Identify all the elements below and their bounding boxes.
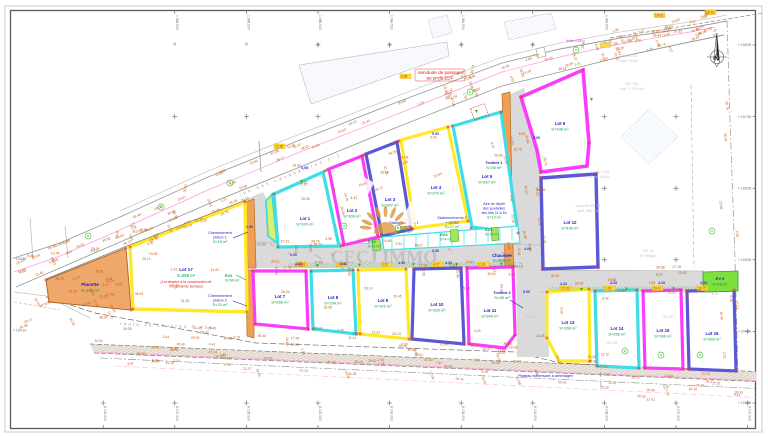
svg-text:2.24: 2.24 xyxy=(173,359,180,363)
svg-text:S=306 m²: S=306 m² xyxy=(343,214,361,219)
svg-text:Lot 7: Lot 7 xyxy=(275,294,286,299)
svg-text:1.22: 1.22 xyxy=(171,267,178,271)
svg-text:34.06: 34.06 xyxy=(537,188,546,192)
svg-text:+ 107.50: + 107.50 xyxy=(738,115,751,119)
svg-text:surf. 980 m2: surf. 980 m2 xyxy=(577,209,598,213)
svg-text:18.45: 18.45 xyxy=(509,345,518,349)
svg-text:7.90: 7.90 xyxy=(473,358,480,362)
svg-text:27.31: 27.31 xyxy=(281,240,290,244)
svg-text:4.33: 4.33 xyxy=(700,281,707,285)
svg-text:15.33: 15.33 xyxy=(461,286,470,290)
svg-text:11.43: 11.43 xyxy=(608,381,617,385)
svg-text:8.15: 8.15 xyxy=(301,180,308,184)
svg-text:2.00: 2.00 xyxy=(735,231,740,238)
svg-text:25.12: 25.12 xyxy=(142,257,151,261)
svg-text:35.32: 35.32 xyxy=(637,394,646,398)
svg-text:25.17: 25.17 xyxy=(706,380,715,384)
svg-text:0.97: 0.97 xyxy=(663,385,670,389)
svg-text:8 138.000: 8 138.000 xyxy=(461,406,465,421)
svg-text:21.27: 21.27 xyxy=(243,367,252,371)
svg-text:4.96: 4.96 xyxy=(325,237,332,241)
svg-text:29.76: 29.76 xyxy=(170,348,179,352)
svg-text:4.33: 4.33 xyxy=(560,282,567,286)
svg-text:Placette: Placette xyxy=(81,282,99,287)
svg-text:27.72: 27.72 xyxy=(357,238,366,242)
svg-text:27.83: 27.83 xyxy=(295,264,304,268)
svg-text:10.52: 10.52 xyxy=(94,339,103,343)
svg-text:8.42: 8.42 xyxy=(602,296,609,300)
svg-text:32.56: 32.56 xyxy=(324,306,333,310)
svg-text:S=38 m²: S=38 m² xyxy=(494,295,510,300)
svg-text:29.41: 29.41 xyxy=(653,287,661,291)
svg-text:28.72: 28.72 xyxy=(313,242,322,246)
svg-text:28.82: 28.82 xyxy=(368,359,377,363)
svg-text:34.78: 34.78 xyxy=(348,372,357,376)
svg-text:8 135.000: 8 135.000 xyxy=(318,406,322,421)
svg-text:4.97: 4.97 xyxy=(127,362,134,366)
svg-text:ZD 19: ZD 19 xyxy=(663,315,673,319)
svg-text:12.48: 12.48 xyxy=(440,342,449,346)
svg-text:12.31: 12.31 xyxy=(449,264,458,268)
svg-text:10.91: 10.91 xyxy=(482,346,491,350)
svg-text:5.00: 5.00 xyxy=(523,290,530,294)
svg-text:14.94: 14.94 xyxy=(665,374,674,378)
svg-text:14.81: 14.81 xyxy=(655,14,663,18)
svg-text:S=360 m²: S=360 m² xyxy=(703,337,721,342)
svg-text:18.18: 18.18 xyxy=(514,265,523,269)
svg-text:4.00: 4.00 xyxy=(301,166,308,170)
svg-text:S=13 m²: S=13 m² xyxy=(487,216,501,220)
svg-text:20.23: 20.23 xyxy=(392,332,401,336)
svg-text:36.01: 36.01 xyxy=(558,67,567,71)
svg-text:13.06: 13.06 xyxy=(149,252,158,256)
svg-text:36.49: 36.49 xyxy=(257,334,266,338)
svg-text:+ accès: + accès xyxy=(445,220,458,224)
svg-text:30.05: 30.05 xyxy=(224,336,233,340)
svg-text:1.99: 1.99 xyxy=(605,287,612,291)
svg-text:+ 108.50: + 108.50 xyxy=(738,43,751,47)
svg-text:33.95: 33.95 xyxy=(500,284,504,293)
svg-text:S=286 m²: S=286 m² xyxy=(654,334,672,339)
svg-text:6.29: 6.29 xyxy=(116,282,123,286)
svg-text:36.03: 36.03 xyxy=(135,292,144,296)
svg-text:2.79: 2.79 xyxy=(337,329,344,333)
svg-text:Lot 9: Lot 9 xyxy=(378,298,389,303)
svg-text:33.19: 33.19 xyxy=(165,361,174,365)
svg-text:35.33: 35.33 xyxy=(558,380,567,384)
svg-text:2.25: 2.25 xyxy=(378,362,385,366)
svg-text:12.31: 12.31 xyxy=(372,331,381,335)
svg-text:31.52: 31.52 xyxy=(181,299,190,303)
svg-text:1 986.500: 1 986.500 xyxy=(246,15,250,30)
svg-text:3.50: 3.50 xyxy=(432,249,439,253)
svg-text:S=266 m²: S=266 m² xyxy=(559,326,577,331)
svg-text:ZD 14: ZD 14 xyxy=(643,249,653,253)
svg-text:11.01: 11.01 xyxy=(353,331,361,335)
svg-text:11.41: 11.41 xyxy=(348,336,356,340)
svg-text:1 984.500: 1 984.500 xyxy=(604,15,608,30)
svg-text:7.83: 7.83 xyxy=(649,281,656,285)
svg-text:EV2: EV2 xyxy=(225,274,232,278)
svg-text:25.42: 25.42 xyxy=(398,344,407,348)
svg-text:Lot 2: Lot 2 xyxy=(347,208,358,213)
svg-text:14.35: 14.35 xyxy=(536,334,545,338)
svg-text:4.31: 4.31 xyxy=(351,196,358,200)
svg-text:parcelle ZD 12: parcelle ZD 12 xyxy=(576,204,601,208)
svg-text:Lot 10: Lot 10 xyxy=(431,302,444,307)
svg-text:10.28: 10.28 xyxy=(588,355,597,359)
svg-text:1 986.500: 1 986.500 xyxy=(318,15,322,30)
svg-text:27.08: 27.08 xyxy=(314,260,323,264)
svg-text:36.18: 36.18 xyxy=(735,390,744,394)
svg-text:ZD 18: ZD 18 xyxy=(607,341,617,345)
svg-text:11.14: 11.14 xyxy=(701,371,710,375)
svg-text:5.00: 5.00 xyxy=(533,136,540,140)
svg-text:S=322 m²: S=322 m² xyxy=(374,304,392,309)
svg-text:11.92: 11.92 xyxy=(668,291,676,295)
svg-text:Lot 13: Lot 13 xyxy=(562,320,575,325)
svg-text:Zone 2AUh: Zone 2AUh xyxy=(590,175,609,179)
svg-text:23.46: 23.46 xyxy=(383,239,392,243)
svg-text:20.23: 20.23 xyxy=(99,295,108,299)
svg-text:Lot 4: Lot 4 xyxy=(431,185,442,190)
svg-text:8 134.000: 8 134.000 xyxy=(533,406,537,421)
svg-text:Lot 16: Lot 16 xyxy=(706,331,719,336)
svg-text:1.50: 1.50 xyxy=(246,225,253,229)
svg-text:6.39: 6.39 xyxy=(509,273,516,277)
svg-text:0.84: 0.84 xyxy=(401,75,408,79)
svg-text:+ 105.50: + 105.50 xyxy=(738,258,751,262)
svg-text:33.14: 33.14 xyxy=(364,286,373,290)
svg-text:3.23: 3.23 xyxy=(474,329,481,333)
svg-text:8 138.000: 8 138.000 xyxy=(604,406,608,421)
svg-text:Lot 11: Lot 11 xyxy=(484,308,497,313)
svg-text:3.27: 3.27 xyxy=(689,20,696,24)
svg-text:EV5: EV5 xyxy=(485,227,493,232)
svg-text:33.36: 33.36 xyxy=(444,364,453,368)
svg-text:20.77: 20.77 xyxy=(513,359,522,363)
svg-text:N: N xyxy=(714,56,719,63)
svg-text:EV4: EV4 xyxy=(440,232,448,237)
svg-text:1 984.500: 1 984.500 xyxy=(390,15,394,30)
svg-text:26.96: 26.96 xyxy=(494,153,503,157)
svg-text:S=266 m²: S=266 m² xyxy=(271,300,289,305)
svg-text:29.85: 29.85 xyxy=(608,278,617,282)
svg-text:S=48 m²: S=48 m² xyxy=(712,282,728,287)
svg-text:Cheminement: Cheminement xyxy=(208,231,233,235)
svg-text:36.76: 36.76 xyxy=(631,375,640,379)
svg-text:des poubelles: des poubelles xyxy=(483,206,505,210)
svg-text:30.45: 30.45 xyxy=(274,266,278,275)
svg-text:8.31: 8.31 xyxy=(91,249,98,253)
svg-text:11.72: 11.72 xyxy=(601,353,609,357)
svg-text:piéton 1: piéton 1 xyxy=(213,235,227,239)
svg-text:31.11: 31.11 xyxy=(455,377,464,381)
svg-text:3.96: 3.96 xyxy=(509,195,514,202)
svg-text:32.45: 32.45 xyxy=(151,346,160,350)
svg-text:7.97: 7.97 xyxy=(435,361,442,365)
svg-text:S=27 m²: S=27 m² xyxy=(445,225,460,229)
svg-text:20.92: 20.92 xyxy=(191,336,200,340)
svg-text:8 137.000: 8 137.000 xyxy=(748,406,752,421)
svg-text:limite EDF: limite EDF xyxy=(566,39,583,43)
svg-text:39.13: 39.13 xyxy=(354,360,363,364)
svg-text:32.42: 32.42 xyxy=(69,289,78,293)
svg-text:6.74: 6.74 xyxy=(224,363,231,367)
svg-text:2.24: 2.24 xyxy=(479,263,486,267)
svg-text:31.93: 31.93 xyxy=(327,360,336,364)
svg-text:Plateau traversant à aménager: Plateau traversant à aménager xyxy=(518,373,574,378)
svg-text:1 984.500: 1 984.500 xyxy=(461,15,465,30)
svg-text:17.88: 17.88 xyxy=(291,336,300,340)
svg-text:4.33: 4.33 xyxy=(398,261,405,265)
svg-text:S=59 m²: S=59 m² xyxy=(486,165,502,170)
svg-text:15.76: 15.76 xyxy=(514,148,523,152)
svg-text:Lot 1: Lot 1 xyxy=(300,216,311,221)
svg-text:Lot 15: Lot 15 xyxy=(657,328,670,333)
svg-text:Lot 12: Lot 12 xyxy=(564,220,577,225)
svg-text:18.68: 18.68 xyxy=(285,337,289,346)
svg-text:24.11: 24.11 xyxy=(271,259,279,263)
svg-text:piéton 2: piéton 2 xyxy=(213,298,227,302)
svg-text:20.32: 20.32 xyxy=(673,30,682,34)
svg-text:9.51: 9.51 xyxy=(430,135,437,139)
svg-text:17.94: 17.94 xyxy=(419,263,428,267)
svg-text:25.06: 25.06 xyxy=(301,197,310,201)
svg-text:(Lot destiné à la construction: (Lot destiné à la construction de xyxy=(161,280,212,284)
svg-text:8 137.000: 8 137.000 xyxy=(175,406,179,421)
svg-text:Lot 5: Lot 5 xyxy=(482,174,493,179)
svg-text:9.06: 9.06 xyxy=(559,307,563,314)
svg-text:Aire de dépôt: Aire de dépôt xyxy=(483,202,504,206)
svg-text:4.28: 4.28 xyxy=(481,370,488,374)
svg-text:33.45: 33.45 xyxy=(653,34,662,38)
svg-text:18.02: 18.02 xyxy=(294,245,298,254)
svg-text:34.92: 34.92 xyxy=(347,267,351,276)
svg-text:18.28: 18.28 xyxy=(123,327,132,331)
svg-text:37.41: 37.41 xyxy=(171,284,180,288)
svg-text:37.69: 37.69 xyxy=(618,289,627,293)
svg-text:16.49: 16.49 xyxy=(176,342,185,346)
svg-text:28.67: 28.67 xyxy=(314,326,323,330)
svg-text:20.79: 20.79 xyxy=(725,101,730,110)
svg-text:33.39: 33.39 xyxy=(422,268,426,277)
svg-text:17.78: 17.78 xyxy=(672,265,681,269)
svg-text:10.48: 10.48 xyxy=(719,311,724,320)
svg-text:16.35: 16.35 xyxy=(215,354,224,358)
svg-text:S=16 m²: S=16 m² xyxy=(213,240,228,244)
svg-text:12.66: 12.66 xyxy=(275,145,283,149)
svg-text:le Village: le Village xyxy=(640,254,655,258)
svg-text:EV3: EV3 xyxy=(368,239,376,244)
svg-text:des lots 11 à 16: des lots 11 à 16 xyxy=(481,211,506,215)
svg-text:20.45: 20.45 xyxy=(393,295,402,299)
svg-text:9.31: 9.31 xyxy=(152,359,159,363)
svg-text:1 986.500: 1 986.500 xyxy=(175,15,179,30)
svg-text:19.93: 19.93 xyxy=(308,243,312,252)
svg-text:ZD 16: ZD 16 xyxy=(525,315,535,319)
svg-text:S=266 m²: S=266 m² xyxy=(608,332,626,337)
svg-text:15.01: 15.01 xyxy=(537,217,542,226)
svg-text:30.88: 30.88 xyxy=(656,266,665,270)
svg-text:S=430 m²: S=430 m² xyxy=(561,226,579,231)
svg-text:28.91: 28.91 xyxy=(95,270,104,274)
svg-text:S=302 m²: S=302 m² xyxy=(428,308,446,313)
svg-text:18.03: 18.03 xyxy=(414,353,423,357)
svg-text:35.50: 35.50 xyxy=(646,388,655,392)
svg-text:S=4 m²: S=4 m² xyxy=(440,238,452,242)
svg-text:S=347 m²: S=347 m² xyxy=(381,203,399,208)
svg-text:Lot 8: Lot 8 xyxy=(328,295,339,300)
svg-text:12.60: 12.60 xyxy=(651,30,660,34)
svg-text:Lot 3: Lot 3 xyxy=(385,197,396,202)
svg-text:8 134.000: 8 134.000 xyxy=(390,406,394,421)
svg-text:10.47: 10.47 xyxy=(470,344,479,348)
svg-text:32.00: 32.00 xyxy=(424,358,433,362)
svg-text:20.29: 20.29 xyxy=(600,385,609,389)
svg-text:4.33: 4.33 xyxy=(340,262,347,266)
svg-text:16.04: 16.04 xyxy=(487,272,496,276)
svg-text:0.34: 0.34 xyxy=(396,242,403,246)
svg-text:0.18: 0.18 xyxy=(106,277,113,281)
svg-text:15.76: 15.76 xyxy=(561,287,569,291)
svg-text:8.72: 8.72 xyxy=(234,335,241,339)
svg-text:25.06: 25.06 xyxy=(599,364,608,368)
svg-text:+ 106.50: + 106.50 xyxy=(738,186,751,190)
svg-text:32.06: 32.06 xyxy=(588,360,597,364)
svg-text:S=12 m²: S=12 m² xyxy=(485,233,499,237)
svg-text:2.66: 2.66 xyxy=(377,358,384,362)
svg-text:6.33: 6.33 xyxy=(603,372,610,376)
svg-text:35.25: 35.25 xyxy=(685,291,689,300)
svg-text:25.49: 25.49 xyxy=(208,326,217,330)
svg-text:2.16: 2.16 xyxy=(722,352,727,359)
svg-text:EV 6: EV 6 xyxy=(716,276,725,281)
svg-text:8.86: 8.86 xyxy=(27,254,34,258)
svg-text:30.04: 30.04 xyxy=(281,290,290,294)
svg-text:7.77: 7.77 xyxy=(712,292,719,296)
svg-text:31.20: 31.20 xyxy=(551,274,560,278)
svg-text:S=349 m²: S=349 m² xyxy=(481,314,499,319)
svg-text:S=438 m²: S=438 m² xyxy=(551,127,569,132)
svg-text:25.78: 25.78 xyxy=(55,277,64,281)
svg-text:au profit EDF: au profit EDF xyxy=(426,76,453,81)
svg-text:S=667 m²: S=667 m² xyxy=(478,180,496,185)
svg-text:25.32: 25.32 xyxy=(200,330,209,334)
svg-text:S=379 m²: S=379 m² xyxy=(427,191,445,196)
svg-text:DP 745: DP 745 xyxy=(626,82,639,86)
svg-text:13.78: 13.78 xyxy=(51,252,60,256)
svg-text:20.39: 20.39 xyxy=(692,289,701,293)
svg-text:33.27: 33.27 xyxy=(224,356,233,360)
svg-text:Lot 14: Lot 14 xyxy=(611,326,624,331)
svg-text:8.18: 8.18 xyxy=(729,295,734,302)
svg-text:11.44: 11.44 xyxy=(211,268,219,272)
svg-text:21.06: 21.06 xyxy=(400,156,409,160)
svg-text:Cheminement: Cheminement xyxy=(208,294,233,298)
svg-text:13.19: 13.19 xyxy=(511,214,516,223)
svg-text:4.43: 4.43 xyxy=(209,342,216,346)
svg-text:8 137.000: 8 137.000 xyxy=(676,406,680,421)
svg-text:15.61: 15.61 xyxy=(466,260,475,264)
svg-text:Lot 17: Lot 17 xyxy=(179,267,193,272)
svg-text:surf. 1 250 m2: surf. 1 250 m2 xyxy=(620,87,644,91)
svg-text:28.26: 28.26 xyxy=(575,281,584,285)
svg-text:servitude de passage: servitude de passage xyxy=(418,70,462,75)
svg-text:12.52: 12.52 xyxy=(646,397,655,401)
svg-text:38.58: 38.58 xyxy=(723,133,728,142)
svg-text:8 136.000: 8 136.000 xyxy=(246,406,250,421)
svg-text:12.12: 12.12 xyxy=(299,368,308,372)
svg-text:Lot 6: Lot 6 xyxy=(555,121,566,126)
svg-text:24.20: 24.20 xyxy=(137,352,146,356)
svg-text:Lot B 1743: Lot B 1743 xyxy=(591,170,609,174)
svg-text:Zone 2AUh: Zone 2AUh xyxy=(618,59,637,63)
svg-text:S=333 m²: S=333 m² xyxy=(296,222,314,227)
svg-text:Lot A 1742: Lot A 1742 xyxy=(619,54,637,58)
svg-text:10.41: 10.41 xyxy=(517,247,521,256)
svg-text:8 134.000: 8 134.000 xyxy=(103,406,107,421)
svg-text:38.67: 38.67 xyxy=(99,316,108,320)
svg-text:23.99: 23.99 xyxy=(264,356,273,360)
svg-text:3.27: 3.27 xyxy=(103,283,110,287)
svg-text:S=60 m²: S=60 m² xyxy=(225,279,240,283)
svg-text:7.27: 7.27 xyxy=(533,54,540,58)
svg-text:23.89: 23.89 xyxy=(719,201,724,210)
svg-text:Stationnements 2: Stationnements 2 xyxy=(437,216,467,220)
svg-text:8.13: 8.13 xyxy=(656,273,663,277)
svg-text:17.78: 17.78 xyxy=(283,265,292,269)
svg-text:8.81: 8.81 xyxy=(519,132,526,136)
svg-text:39.06: 39.06 xyxy=(290,342,299,346)
svg-text:S=859 m²: S=859 m² xyxy=(177,273,196,278)
svg-text:18.18: 18.18 xyxy=(688,387,697,391)
svg-text:S=23 m²: S=23 m² xyxy=(213,303,228,307)
svg-text:24.69: 24.69 xyxy=(257,242,266,246)
svg-text:20.13: 20.13 xyxy=(524,185,529,194)
svg-text:25.44: 25.44 xyxy=(456,269,460,278)
svg-text:37.63: 37.63 xyxy=(735,301,740,310)
svg-text:19.02: 19.02 xyxy=(292,164,301,168)
svg-text:4.33: 4.33 xyxy=(658,281,665,285)
svg-text:3.44: 3.44 xyxy=(162,335,169,339)
svg-text:19.27: 19.27 xyxy=(415,244,424,248)
svg-text:7.53: 7.53 xyxy=(508,264,515,268)
svg-text:12.53: 12.53 xyxy=(678,271,687,275)
